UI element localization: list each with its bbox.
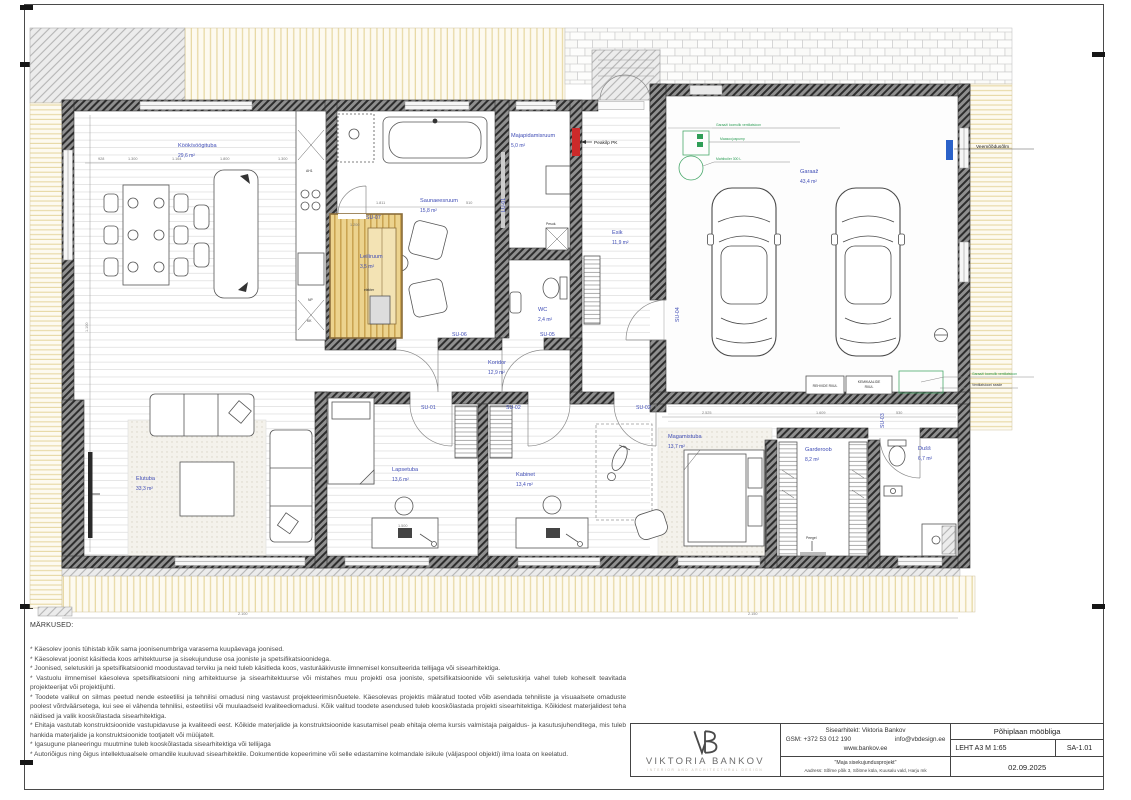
- room-label: Garderoob: [805, 447, 832, 453]
- dimension-label: 1.609: [816, 411, 826, 415]
- water-meter-marker: [946, 140, 953, 160]
- room-area-label: 11,9 m²: [612, 240, 629, 246]
- room-area-label: 13,4 m²: [516, 482, 533, 488]
- mirror: [800, 552, 826, 556]
- logo-name: VIKTORIA BANKOV: [646, 756, 765, 767]
- architect-name: Sisearhitekt: Viktoria Bankov: [781, 726, 951, 735]
- door-label: LU-01: [501, 198, 507, 212]
- wc-sink: [510, 292, 521, 313]
- sauna-heater: [370, 296, 390, 324]
- door-label: SU-02: [506, 405, 521, 411]
- sheet-info-cell: Põhiplaan mööbliga LEHT A3 M 1:65 SA-1.0…: [951, 724, 1103, 776]
- drawing-sheet: { "notes": { "title": "MÄRKUSED:", "item…: [0, 0, 1131, 800]
- car: [832, 188, 905, 356]
- annotation-label: Mahtboiler 300 L: [716, 157, 741, 161]
- room-label: Köök/söögituba: [178, 143, 217, 149]
- lounge-chair: [408, 278, 448, 318]
- room-area-label: 5,0 m²: [511, 143, 526, 149]
- contact-cell: Sisearhitekt: Viktoria Bankov GSM: +372 …: [781, 724, 952, 776]
- door-label: SU-07: [366, 215, 381, 221]
- dimension-label: 530: [896, 411, 902, 415]
- sheet-number: SA-1.01: [1056, 740, 1103, 756]
- note-item: * Ehitaja vastutab konstruktsioonide vas…: [30, 721, 626, 740]
- sauna-room: [330, 214, 402, 338]
- door-label: SU-04: [675, 307, 681, 322]
- dimension-label: 2.330: [657, 242, 661, 252]
- dimension-label: 1.164: [172, 157, 182, 161]
- annotation-label: REHVIDE RIIUL: [813, 384, 838, 388]
- annotation-label: KEMIKAALIDE: [858, 380, 881, 384]
- room-area-label: 15,8 m²: [420, 208, 437, 214]
- annotation-label: Garaaži loomulik ventilatsioon: [972, 372, 1017, 376]
- annotation-label: elekter: [364, 288, 375, 292]
- annotation-label: Ventilatsiooni seade: [972, 383, 1002, 387]
- master-bed: [684, 446, 766, 550]
- room-area-label: 13,6 m²: [392, 477, 409, 483]
- logo-subtitle: INTERIOR AND ARCHITECTURAL DESIGN: [647, 768, 763, 772]
- annotation-label: AH1: [306, 169, 313, 173]
- note-item: * Autoriõigus ning õigus intellektuaalse…: [30, 750, 626, 760]
- annotation-label: Peegel: [806, 536, 817, 540]
- bar-stool: [194, 205, 209, 229]
- room-label: Elutuba: [136, 476, 156, 482]
- door-label: SU-03: [880, 413, 886, 428]
- dimension-label: 510: [466, 201, 472, 205]
- shower-toilet: [888, 440, 906, 466]
- website: www.bankov.ee: [781, 744, 951, 753]
- sheet-format-scale: LEHT A3 M 1:65: [951, 740, 1056, 756]
- room-area-label: 2,4 m²: [538, 317, 553, 323]
- room-area-label: 13,7 m²: [668, 444, 685, 450]
- room-area-label: 6,7 m²: [918, 456, 933, 462]
- dimension-label: 1.200: [350, 223, 360, 227]
- wc-toilet: [543, 277, 567, 299]
- project-name: "Maja sisekujundusprojekt": [781, 759, 951, 767]
- notes-title: MÄRKUSED:: [30, 622, 626, 629]
- hall-shelf: [584, 256, 600, 324]
- room-label: Dušš: [918, 446, 931, 452]
- room-label: Magamistuba: [668, 434, 702, 440]
- kitchen-island: [214, 170, 258, 298]
- phone: GSM: +372 53 012 190: [786, 735, 851, 744]
- note-item: * Joonised, seletuskiri ja spetsifikatsi…: [30, 664, 626, 674]
- dimension-label: 1.811: [376, 201, 385, 205]
- note-item: * Käesolevat joonist käsitleda koos arhi…: [30, 655, 626, 665]
- dimension-label: 1.800: [220, 157, 230, 161]
- notes-section: MÄRKUSED: * Käesolev joonis tühistab kõi…: [30, 622, 626, 759]
- door-label: SU-01: [421, 405, 436, 411]
- room-label: Leiliruum: [360, 254, 383, 260]
- note-item: * Toodete valikul on silmas peetud nende…: [30, 693, 626, 722]
- room-label: Majapidamisruum: [511, 133, 555, 139]
- sheet-date: 02.09.2025: [951, 757, 1103, 777]
- note-item: * Vastuolu ilmnemisel käesoleva spetsifi…: [30, 674, 626, 693]
- dimension-label: 2.525: [702, 411, 712, 415]
- annotation-label: KK: [307, 319, 312, 323]
- room-area-label: 43,4 m²: [800, 179, 817, 185]
- note-item: * Käesolev joonis tühistab kõik sama joo…: [30, 645, 626, 655]
- fridge: [298, 253, 324, 285]
- door-label: SU-02: [636, 405, 651, 411]
- room-label: Kabinet: [516, 472, 535, 478]
- door-label: SU-05: [540, 332, 555, 338]
- email: info@vbdesign.ee: [895, 735, 946, 744]
- dimension-label: 2.150: [748, 612, 758, 616]
- coffee-table: [180, 462, 234, 516]
- room-area-label: 3,5 m²: [360, 264, 375, 270]
- dimension-label: 1.100: [85, 322, 89, 332]
- sheet-title: Põhiplaan mööbliga: [951, 724, 1103, 740]
- tv: [88, 452, 93, 538]
- annotation-label: Veemõõdusõlm: [976, 144, 1009, 150]
- dimension-label: 928: [98, 157, 104, 161]
- bath-sink: [884, 486, 902, 496]
- annotation-label: Garaaži loomulik ventilatsioon: [716, 123, 761, 127]
- room-area-label: 8,2 m²: [805, 457, 820, 463]
- door-label: SU-06: [452, 332, 467, 338]
- note-item: * Igasugune planeeringu muutmine tuleb k…: [30, 740, 626, 750]
- closet-shelf: [455, 406, 477, 458]
- wardrobe-unit: [849, 442, 867, 556]
- room-label: Lapsetuba: [392, 467, 419, 473]
- closet-shelf: [490, 406, 512, 458]
- dimension-label: 1.500: [398, 524, 408, 528]
- wardrobe-unit: [779, 442, 797, 556]
- vb-monogram-icon: [692, 729, 718, 755]
- room-label: WC: [538, 307, 547, 313]
- room-label: Esik: [612, 230, 623, 236]
- room-label: Garaaž: [800, 169, 819, 175]
- room-label: Saunaeesruum: [420, 198, 458, 204]
- annotation-label: RIIUL: [865, 385, 874, 389]
- dimension-label: 2.100: [238, 612, 248, 616]
- car: [708, 188, 781, 356]
- annotation-label: Peakilp PK: [594, 140, 618, 146]
- annotation-label: Maasoojuspump: [720, 137, 745, 141]
- dimension-label: 1.300: [128, 157, 138, 161]
- bathtub: [383, 117, 487, 163]
- room-label: Koridor: [488, 360, 506, 366]
- kids-bed: [328, 398, 374, 484]
- room-area-label: 33,3 m²: [136, 486, 153, 492]
- bar-stool: [194, 243, 209, 267]
- project-address: Aadress: Sõlme põik 3, Sõitme küla, Kuus…: [781, 767, 951, 774]
- main-panel-marker: [572, 128, 580, 156]
- annotation-label: NP: [308, 298, 313, 302]
- logo-cell: VIKTORIA BANKOV INTERIOR AND ARCHITECTUR…: [631, 724, 781, 776]
- title-block: VIKTORIA BANKOV INTERIOR AND ARCHITECTUR…: [630, 723, 1104, 777]
- room-area-label: 12,9 m²: [488, 370, 505, 376]
- utility-cabinet: [546, 166, 570, 194]
- annotation-label: Pesuk.: [546, 222, 556, 226]
- dimension-label: 1.300: [278, 157, 288, 161]
- shower-corner: [338, 114, 374, 162]
